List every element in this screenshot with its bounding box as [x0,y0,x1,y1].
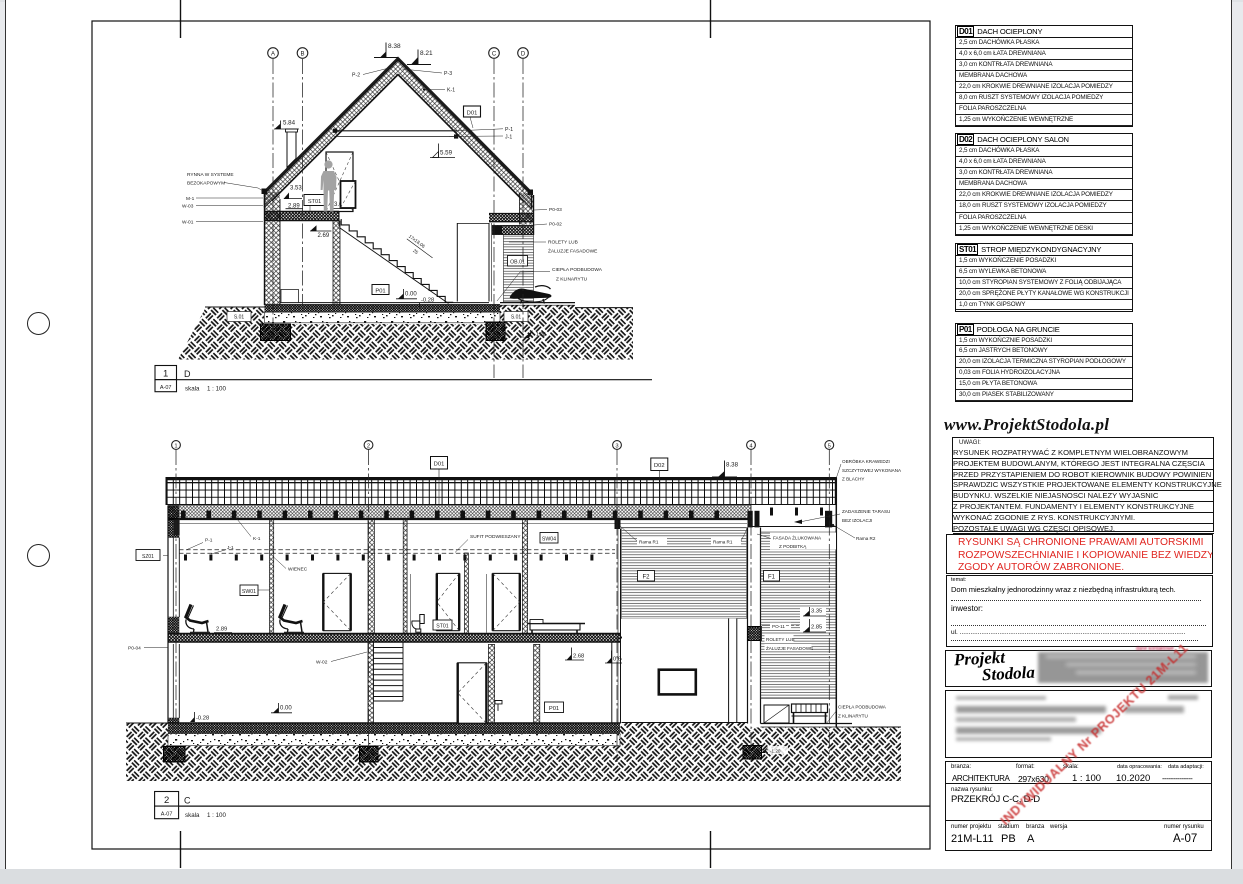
svg-text:S.01: S.01 [234,315,245,321]
svg-text:8.21: 8.21 [420,50,433,57]
svg-text:K-1: K-1 [447,88,455,94]
svg-text:BEZ IZOLACJI: BEZ IZOLACJI [842,518,872,523]
svg-text:A: A [271,52,275,58]
svg-text:D: D [521,52,526,58]
svg-text:P-3: P-3 [444,71,452,77]
svg-text:-0.28: -0.28 [421,298,434,304]
svg-text:OBRÓBKA KRAWEDZI: OBRÓBKA KRAWEDZI [842,458,890,464]
svg-text:W-01: W-01 [182,220,194,226]
svg-text:SZ01: SZ01 [142,554,154,560]
svg-text:Z PODBITKĄ: Z PODBITKĄ [779,544,807,549]
svg-text:D02: D02 [654,463,665,469]
svg-text:1 : 100: 1 : 100 [207,812,226,819]
svg-text:P01: P01 [375,288,385,294]
svg-text:Rama R2: Rama R2 [856,536,876,541]
svg-text:SZCZYTOWEJ WYKONANA: SZCZYTOWEJ WYKONANA [842,468,902,473]
svg-text:K-1: K-1 [253,536,261,542]
svg-text:S.01: S.01 [511,315,522,321]
svg-text:ROLETY LUB: ROLETY LUB [548,240,578,246]
svg-text:8.38: 8.38 [726,462,739,469]
svg-text:ZADASZENIE TARASU: ZADASZENIE TARASU [842,509,890,514]
svg-text:F2: F2 [642,575,650,581]
svg-text:-0.28: -0.28 [196,716,209,722]
svg-text:Rama R1: Rama R1 [639,540,659,545]
svg-text:P0-02: P0-02 [549,222,562,228]
svg-text:P-1: P-1 [505,127,513,133]
svg-text:D01: D01 [467,110,478,116]
svg-text:3.35: 3.35 [811,609,822,615]
svg-text:ŻALUZJE FASADOWE: ŻALUZJE FASADOWE [766,645,813,651]
svg-text:ROLETY LUB: ROLETY LUB [766,637,795,642]
svg-text:A-07: A-07 [161,812,173,818]
svg-text:CIEPŁA PODBUDOWA: CIEPŁA PODBUDOWA [552,267,603,273]
svg-text:skala: skala [185,812,200,819]
svg-text:5.84: 5.84 [283,120,296,127]
svg-text:Z KLINARYTU: Z KLINARYTU [838,714,868,719]
svg-text:3: 3 [615,444,618,450]
svg-text:0.00: 0.00 [280,706,292,712]
svg-text:SW01: SW01 [242,589,256,595]
svg-text:SW04: SW04 [542,537,556,543]
svg-text:3.53: 3.53 [290,186,302,192]
svg-text:1: 1 [163,369,168,380]
svg-text:B: B [300,52,304,58]
svg-text:0.00: 0.00 [405,292,417,298]
svg-text:-1.20: -1.20 [770,749,781,754]
svg-text:F1: F1 [768,575,776,581]
svg-text:ŻALUZJE FASADOWE: ŻALUZJE FASADOWE [548,248,597,255]
svg-text:5.59: 5.59 [440,150,453,157]
svg-text:C: C [492,52,497,58]
svg-text:2.68: 2.68 [573,654,584,660]
svg-text:SUFIT PODWIESZANY: SUFIT PODWIESZANY [470,534,521,540]
svg-text:J-1: J-1 [505,134,512,140]
svg-text:2: 2 [367,444,370,450]
svg-text:J-1: J-1 [227,545,234,551]
svg-text:P-1: P-1 [205,538,213,544]
svg-text:1 : 100: 1 : 100 [207,386,226,393]
svg-text:PO-11: PO-11 [772,624,785,629]
svg-text:25: 25 [412,248,419,255]
svg-text:P0-03: P0-03 [549,207,562,213]
svg-text:2.85: 2.85 [811,625,822,631]
svg-text:WIENEC: WIENEC [288,567,308,573]
svg-text:FASADA ŻLUKOWANA: FASADA ŻLUKOWANA [773,535,822,541]
svg-text:A-07: A-07 [160,385,172,391]
svg-text:W-03: W-03 [182,204,194,210]
svg-text:Rama R1: Rama R1 [713,540,733,545]
svg-text:BEZOKAPOWYM: BEZOKAPOWYM [187,181,225,187]
svg-text:8.38: 8.38 [388,43,401,50]
svg-text:D: D [184,369,191,379]
svg-text:2.89: 2.89 [216,627,227,633]
svg-text:M-1: M-1 [186,196,195,202]
svg-text:D01: D01 [434,462,445,468]
svg-text:5: 5 [828,444,831,450]
svg-text:Z BLACHY: Z BLACHY [842,477,864,482]
svg-text:1: 1 [174,444,177,450]
svg-text:P-2: P-2 [352,73,360,79]
svg-text:ST01: ST01 [308,199,321,205]
svg-text:RYNNA W SYSTEME: RYNNA W SYSTEME [187,172,234,178]
svg-text:ST01: ST01 [436,624,449,630]
svg-text:P01: P01 [549,706,559,712]
svg-text:CIEPŁA PODBUDOWA: CIEPŁA PODBUDOWA [838,705,887,710]
svg-text:2.69: 2.69 [318,233,330,239]
svg-text:1.20: 1.20 [536,332,546,338]
svg-text:2: 2 [164,795,169,806]
svg-text:C: C [184,796,191,806]
svg-text:W-02: W-02 [316,660,328,666]
svg-text:P0-04: P0-04 [128,646,141,652]
svg-text:Z KLINARYTU: Z KLINARYTU [556,277,588,283]
svg-text:skala: skala [185,386,200,393]
